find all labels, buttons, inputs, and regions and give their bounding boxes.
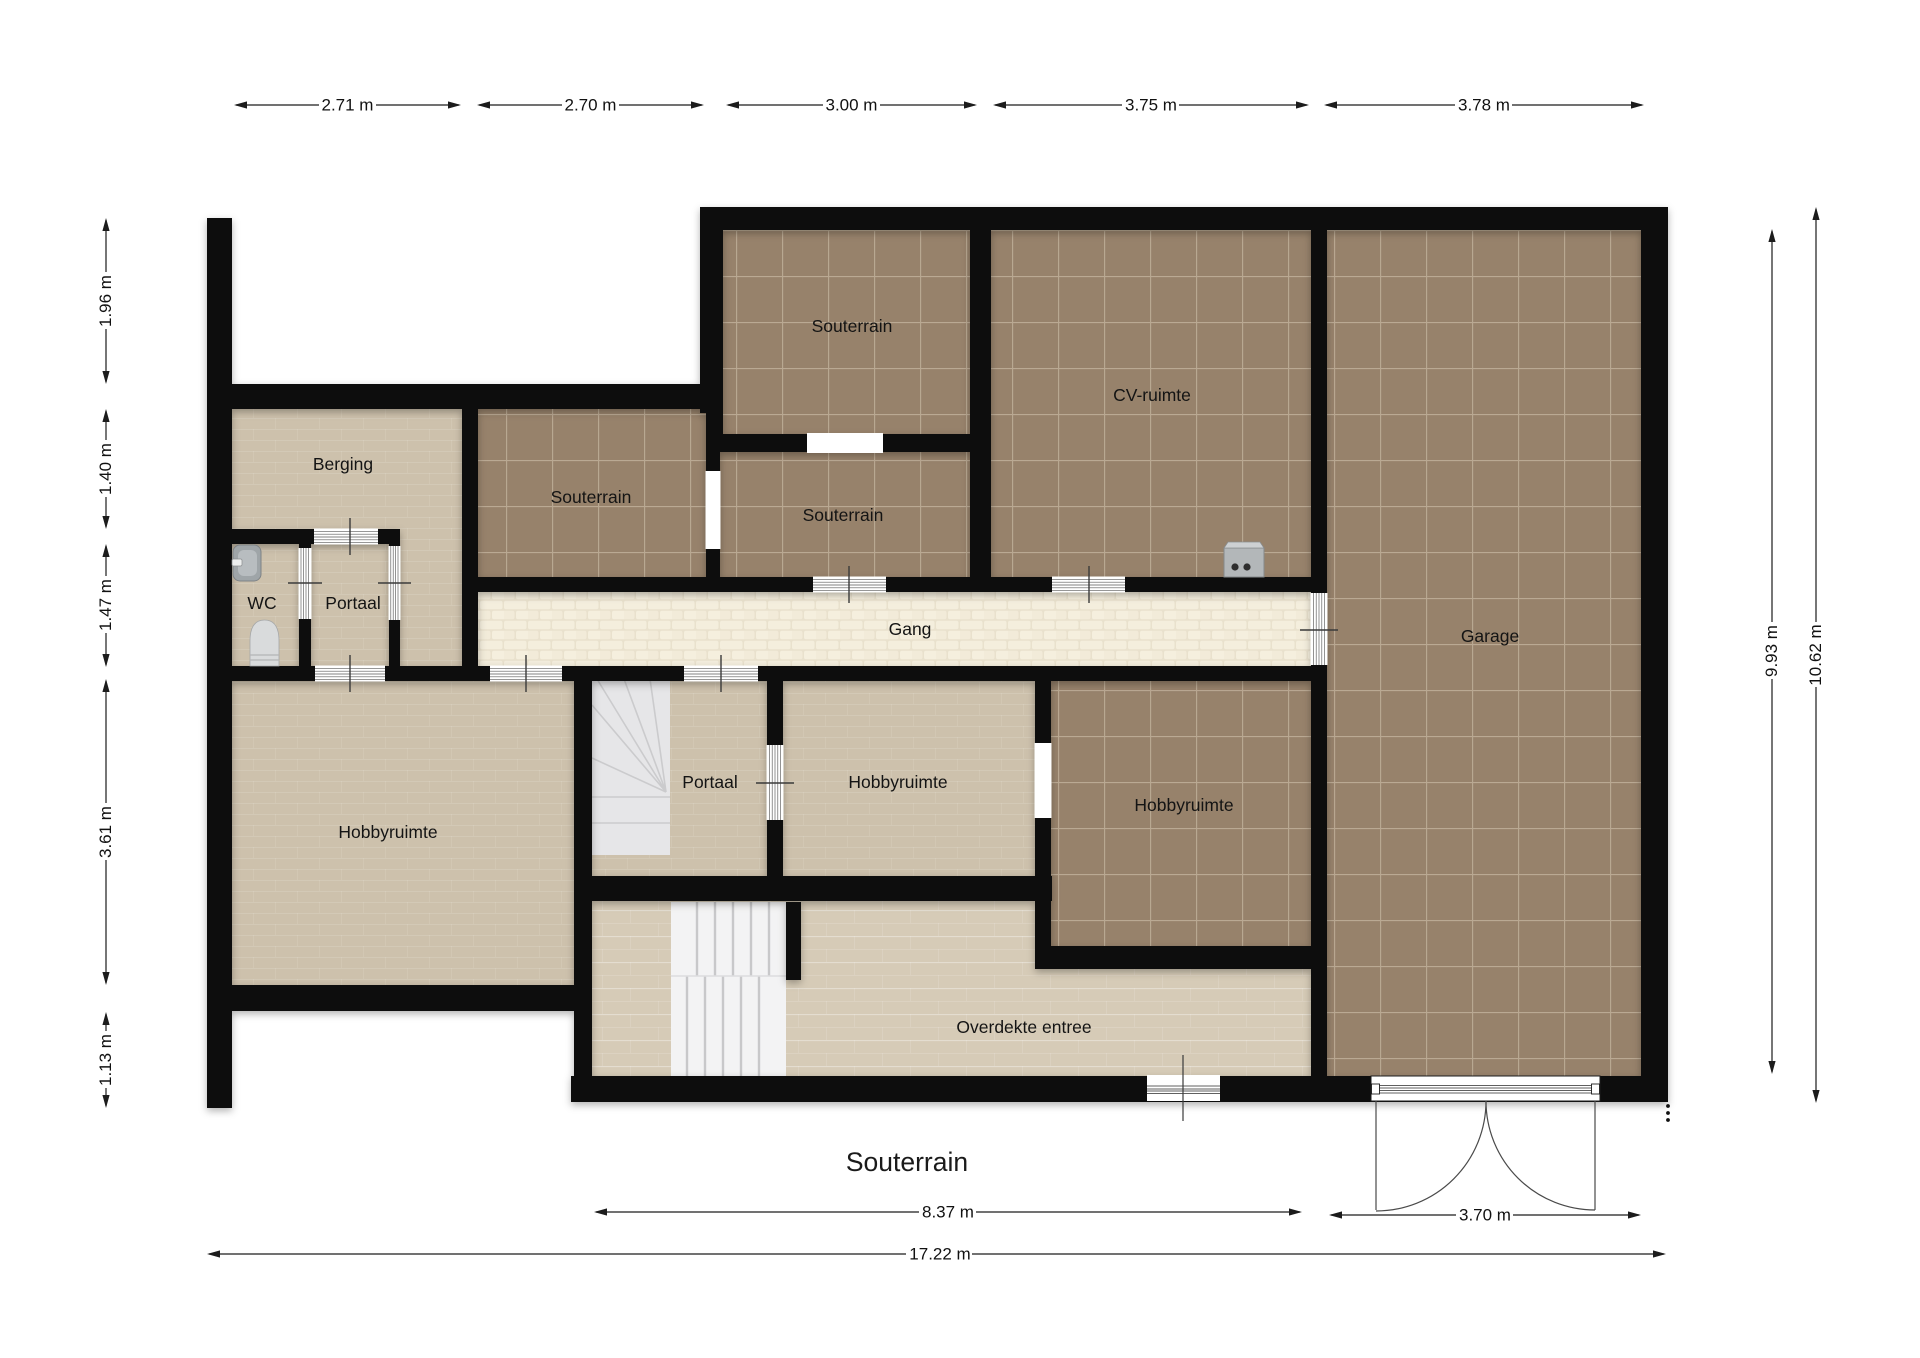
svg-text:2.70 m: 2.70 m: [565, 96, 617, 115]
svg-text:17.22 m: 17.22 m: [909, 1245, 970, 1264]
svg-text:CV-ruimte: CV-ruimte: [1113, 385, 1191, 405]
svg-text:Garage: Garage: [1461, 626, 1519, 646]
svg-text:1.40 m: 1.40 m: [96, 443, 115, 495]
svg-text:8.37 m: 8.37 m: [922, 1203, 974, 1222]
svg-text:Portaal: Portaal: [325, 593, 380, 613]
svg-text:1.13 m: 1.13 m: [96, 1034, 115, 1086]
svg-text:Souterrain: Souterrain: [812, 316, 893, 336]
svg-text:Hobbyruimte: Hobbyruimte: [338, 822, 437, 842]
svg-text:Berging: Berging: [313, 454, 373, 474]
svg-text:Overdekte entree: Overdekte entree: [956, 1017, 1091, 1037]
svg-text:1.47 m: 1.47 m: [96, 579, 115, 631]
svg-text:3.70 m: 3.70 m: [1459, 1206, 1511, 1225]
svg-text:Souterrain: Souterrain: [803, 505, 884, 525]
svg-text:3.75 m: 3.75 m: [1125, 96, 1177, 115]
svg-text:1.96 m: 1.96 m: [96, 275, 115, 327]
svg-text:9.93 m: 9.93 m: [1762, 625, 1781, 677]
svg-text:Souterrain: Souterrain: [846, 1147, 968, 1177]
svg-text:Gang: Gang: [889, 619, 932, 639]
svg-text:3.61 m: 3.61 m: [96, 806, 115, 858]
svg-text:Hobbyruimte: Hobbyruimte: [848, 772, 947, 792]
svg-text:Souterrain: Souterrain: [551, 487, 632, 507]
svg-text:Portaal: Portaal: [682, 772, 737, 792]
svg-text:Hobbyruimte: Hobbyruimte: [1134, 795, 1233, 815]
svg-text:3.00 m: 3.00 m: [826, 96, 878, 115]
svg-text:2.71 m: 2.71 m: [322, 96, 374, 115]
svg-text:WC: WC: [247, 593, 276, 613]
svg-text:3.78 m: 3.78 m: [1458, 96, 1510, 115]
svg-text:10.62 m: 10.62 m: [1806, 624, 1825, 685]
